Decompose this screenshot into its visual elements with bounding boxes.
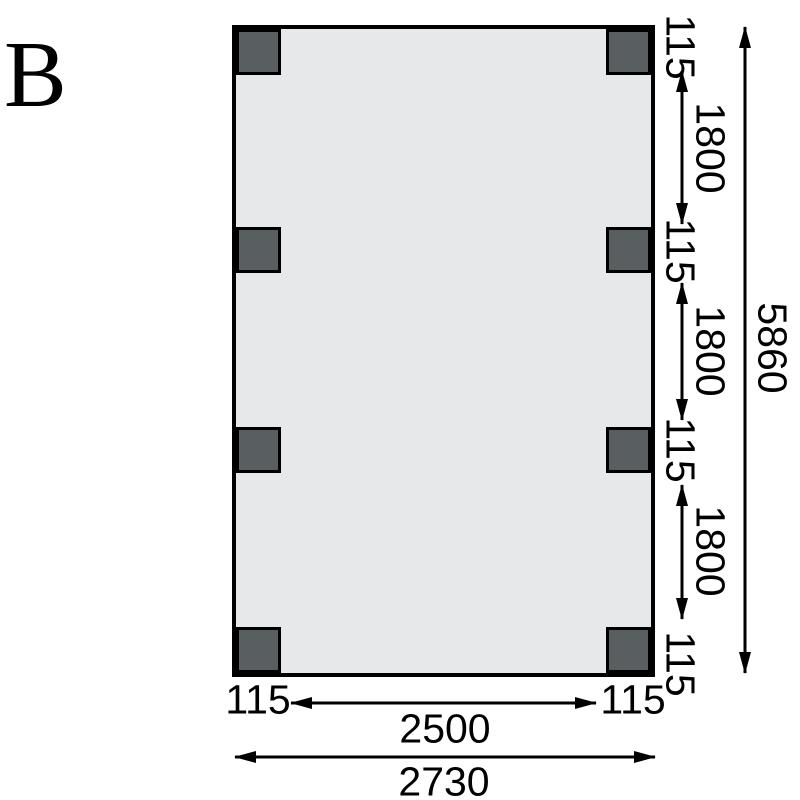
floor-plan-outline (232, 25, 655, 677)
dim-label-right-115-2: 115 (660, 218, 701, 283)
post-marker (236, 627, 281, 673)
post-marker (236, 427, 281, 473)
dim-label-bottom-115-left: 115 (225, 680, 290, 721)
dim-label-right-1800-1: 1800 (690, 102, 731, 193)
dim-label-bottom-total-2730: 2730 (398, 762, 489, 800)
dim-label-right-1800-2: 1800 (690, 305, 731, 396)
drawing-variant-label: B (4, 28, 67, 122)
post-marker (606, 29, 651, 75)
dim-label-right-115-3: 115 (660, 417, 701, 482)
technical-drawing: B 115 1800 115 1800 115 1800 115 5860 11… (0, 0, 800, 800)
dim-label-right-1800-3: 1800 (690, 505, 731, 596)
post-marker (236, 227, 281, 273)
dim-label-right-115-top: 115 (660, 14, 701, 79)
dim-label-right-total-5860: 5860 (752, 302, 793, 393)
dim-label-bottom-2500: 2500 (399, 709, 490, 750)
post-marker (606, 427, 651, 473)
dim-label-bottom-115-right: 115 (600, 680, 665, 721)
post-marker (606, 227, 651, 273)
post-marker (606, 627, 651, 673)
post-marker (236, 29, 281, 75)
